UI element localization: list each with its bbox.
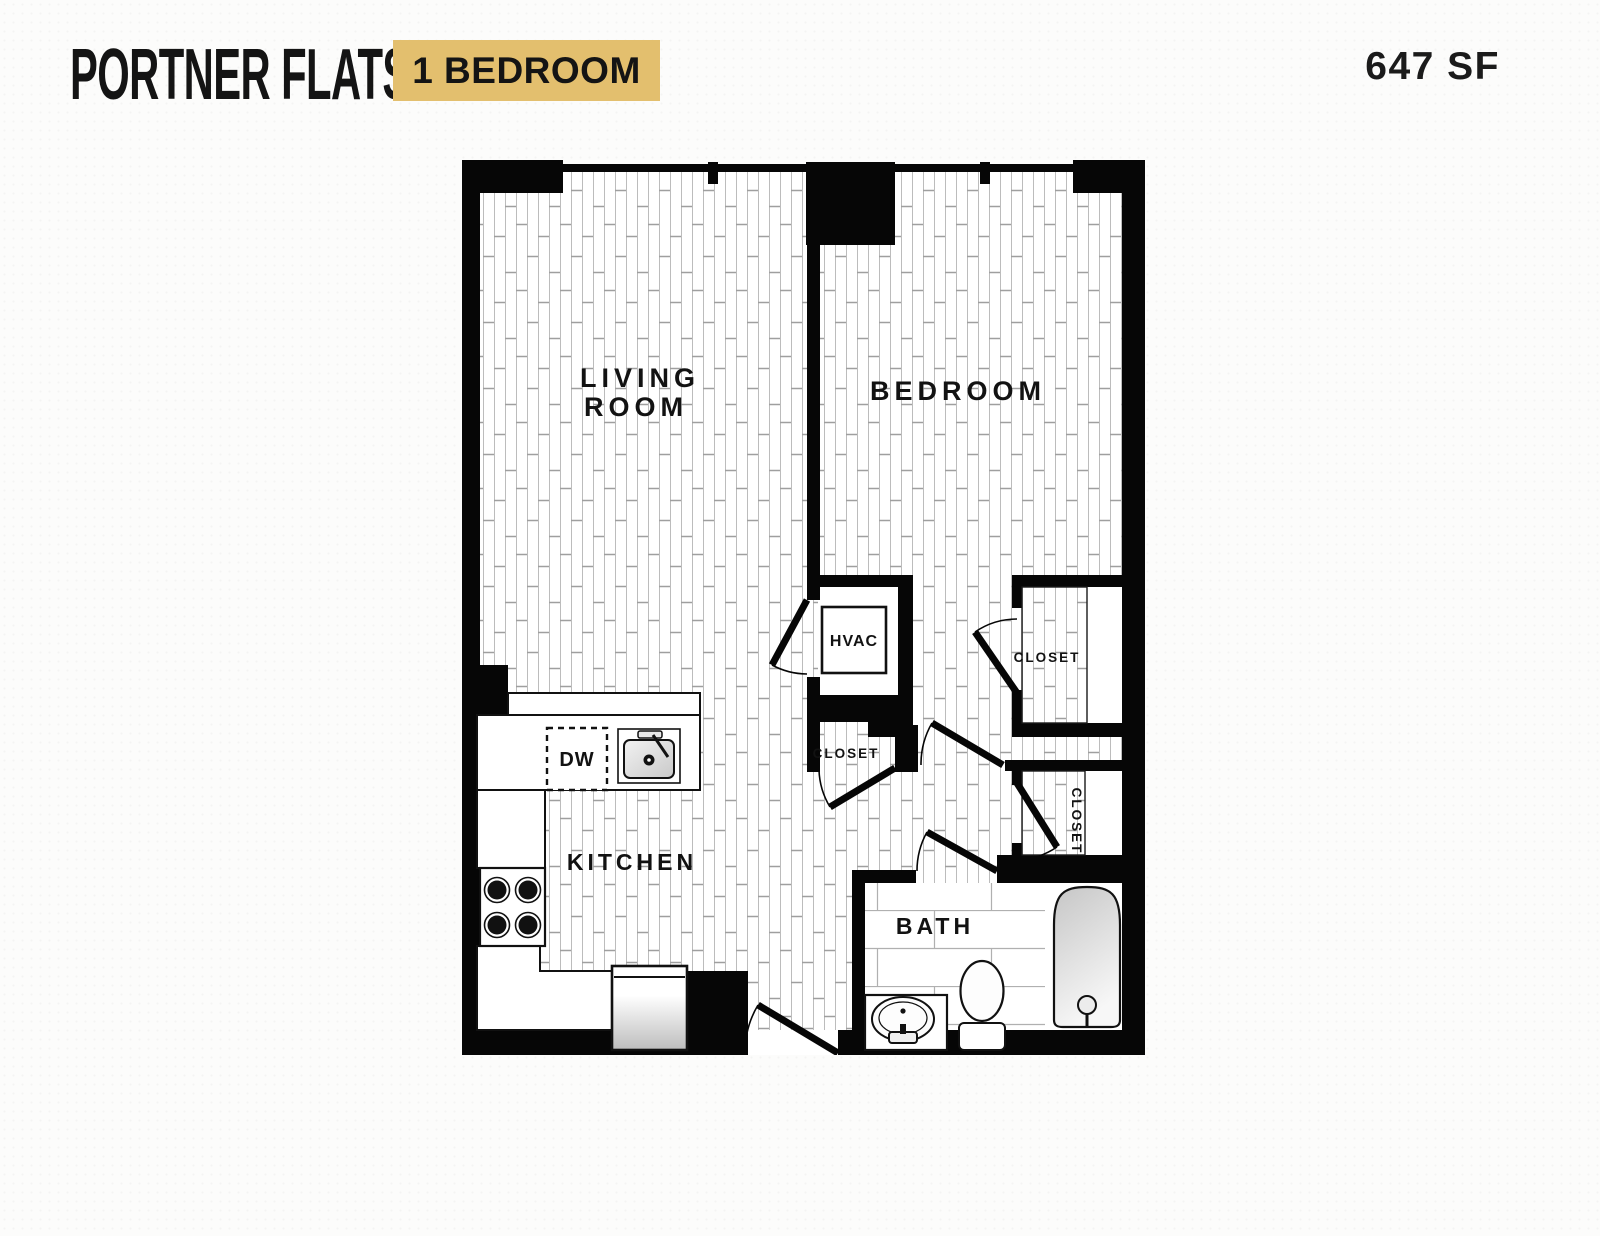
hvac-unit: HVAC	[822, 607, 886, 673]
toilet-icon	[959, 961, 1005, 1050]
hall-closet-label: CLOSET	[813, 746, 880, 761]
page-title: PORTNER FLATS	[70, 34, 410, 116]
living-room-label-line2: ROOM	[584, 392, 688, 422]
dishwasher: DW	[547, 728, 607, 790]
bedroom-label: BEDROOM	[870, 376, 1046, 406]
dishwasher-label: DW	[559, 749, 594, 771]
refrigerator-icon	[612, 966, 687, 1050]
bathtub-icon	[1054, 887, 1120, 1027]
floor-plan-svg: DW	[450, 150, 1150, 1055]
living-room-label-line1: LIVING	[580, 363, 700, 393]
floor-plan: DW	[450, 150, 1150, 1055]
stove-icon	[480, 868, 545, 946]
kitchen-sink-icon	[618, 729, 680, 783]
square-footage: 647 SF	[1365, 45, 1500, 89]
bath-label: BATH	[896, 913, 974, 939]
hvac-label: HVAC	[830, 633, 878, 650]
side-closet-label: CLOSET	[1069, 788, 1084, 855]
unit-type-label: 1 BEDROOM	[412, 50, 641, 92]
kitchen-label: KITCHEN	[567, 849, 697, 875]
unit-type-badge: 1 BEDROOM	[393, 40, 660, 101]
vanity-sink-icon	[865, 995, 947, 1050]
bedroom-closet-label: CLOSET	[1014, 650, 1081, 665]
